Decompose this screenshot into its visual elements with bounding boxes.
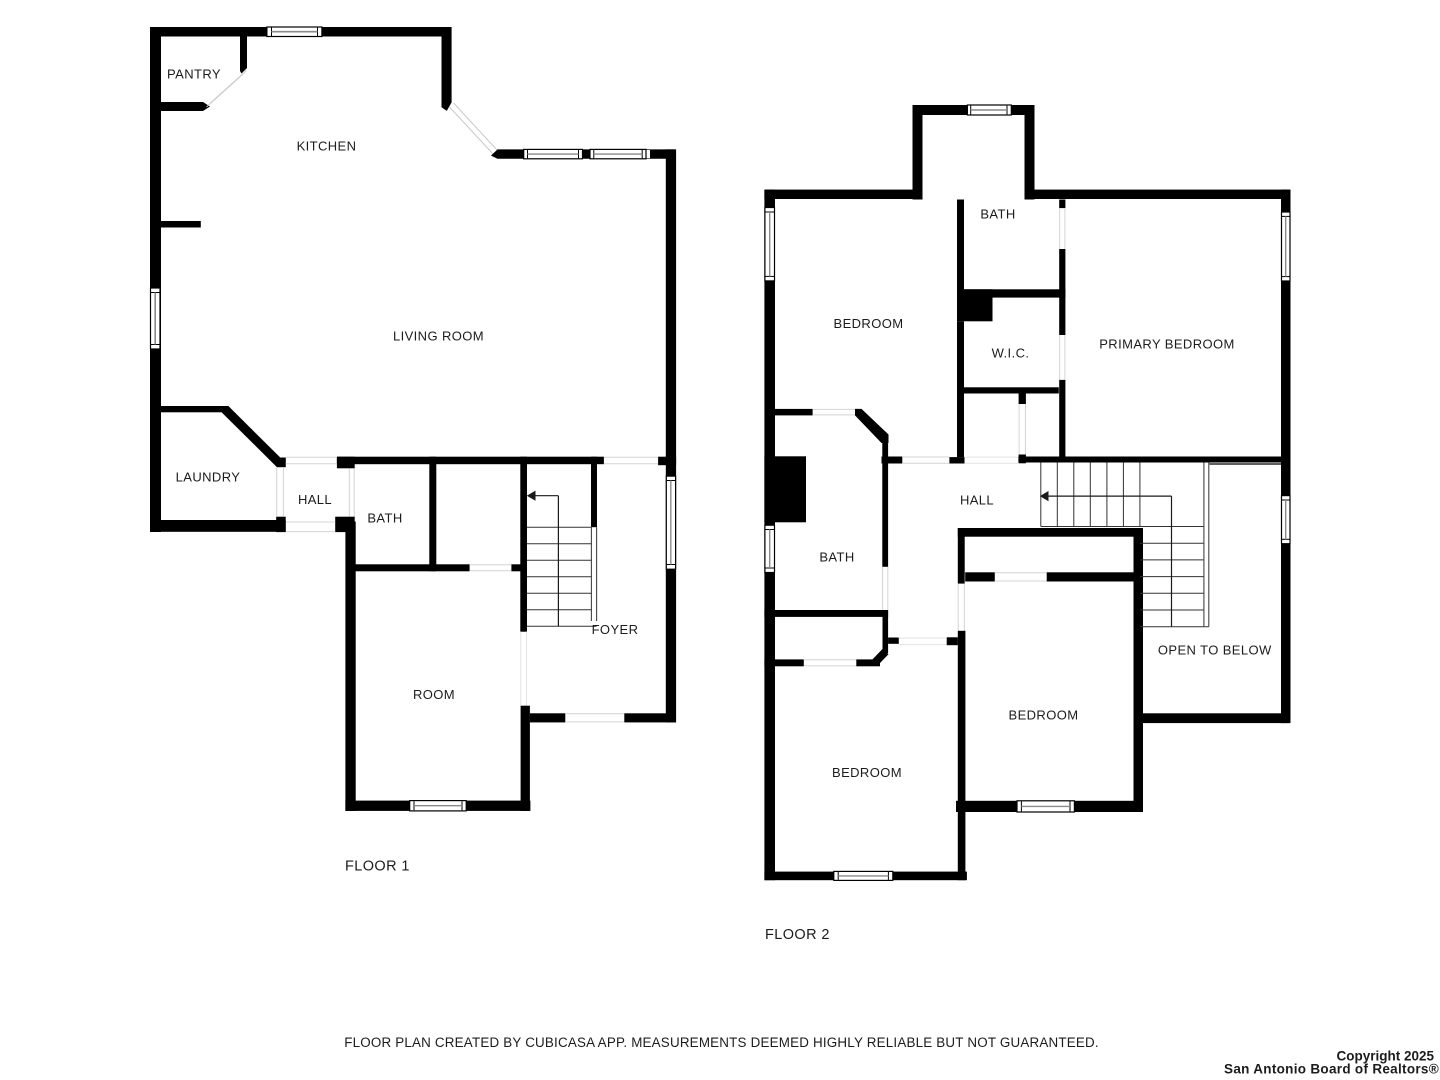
svg-text:FLOOR 2: FLOOR 2: [765, 927, 830, 943]
svg-text:BEDROOM: BEDROOM: [832, 765, 902, 780]
svg-text:San Antonio Board of Realtors®: San Antonio Board of Realtors®: [1224, 1062, 1439, 1077]
svg-text:BATH: BATH: [367, 511, 402, 526]
svg-text:BEDROOM: BEDROOM: [834, 316, 904, 331]
svg-text:ROOM: ROOM: [413, 687, 455, 702]
svg-text:PRIMARY BEDROOM: PRIMARY BEDROOM: [1099, 337, 1235, 352]
svg-text:PANTRY: PANTRY: [167, 67, 221, 82]
svg-text:BATH: BATH: [819, 550, 854, 565]
svg-text:FLOOR PLAN CREATED BY CUBICASA: FLOOR PLAN CREATED BY CUBICASA APP. MEAS…: [344, 1035, 1099, 1050]
svg-text:W.I.C.: W.I.C.: [992, 346, 1030, 361]
svg-text:LIVING ROOM: LIVING ROOM: [393, 329, 484, 344]
svg-text:BEDROOM: BEDROOM: [1009, 708, 1079, 723]
svg-text:FLOOR 1: FLOOR 1: [345, 859, 410, 875]
svg-text:OPEN TO BELOW: OPEN TO BELOW: [1158, 643, 1272, 658]
svg-text:LAUNDRY: LAUNDRY: [176, 470, 241, 485]
svg-text:HALL: HALL: [298, 492, 332, 507]
svg-text:KITCHEN: KITCHEN: [297, 139, 357, 154]
svg-text:FOYER: FOYER: [592, 622, 639, 637]
svg-text:HALL: HALL: [960, 493, 994, 508]
svg-text:BATH: BATH: [980, 207, 1015, 222]
